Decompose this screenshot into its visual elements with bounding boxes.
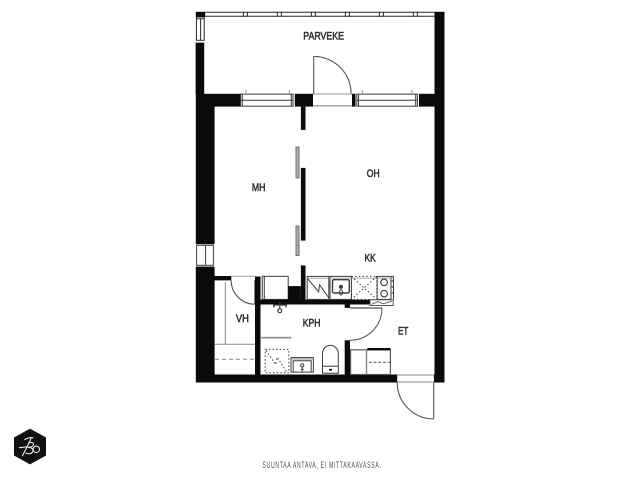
svg-text:KK: KK [364, 252, 376, 264]
svg-text:VH: VH [236, 313, 249, 325]
svg-text:SUUNTAA ANTAVA, EI MITTAKAAVAS: SUUNTAA ANTAVA, EI MITTAKAAVASSA. [262, 459, 381, 470]
svg-text:PARVEKE: PARVEKE [303, 30, 344, 42]
svg-text:ET: ET [398, 325, 408, 338]
svg-text:MH: MH [252, 182, 266, 194]
svg-text:OH: OH [367, 168, 380, 180]
svg-text:KPH: KPH [303, 317, 321, 329]
